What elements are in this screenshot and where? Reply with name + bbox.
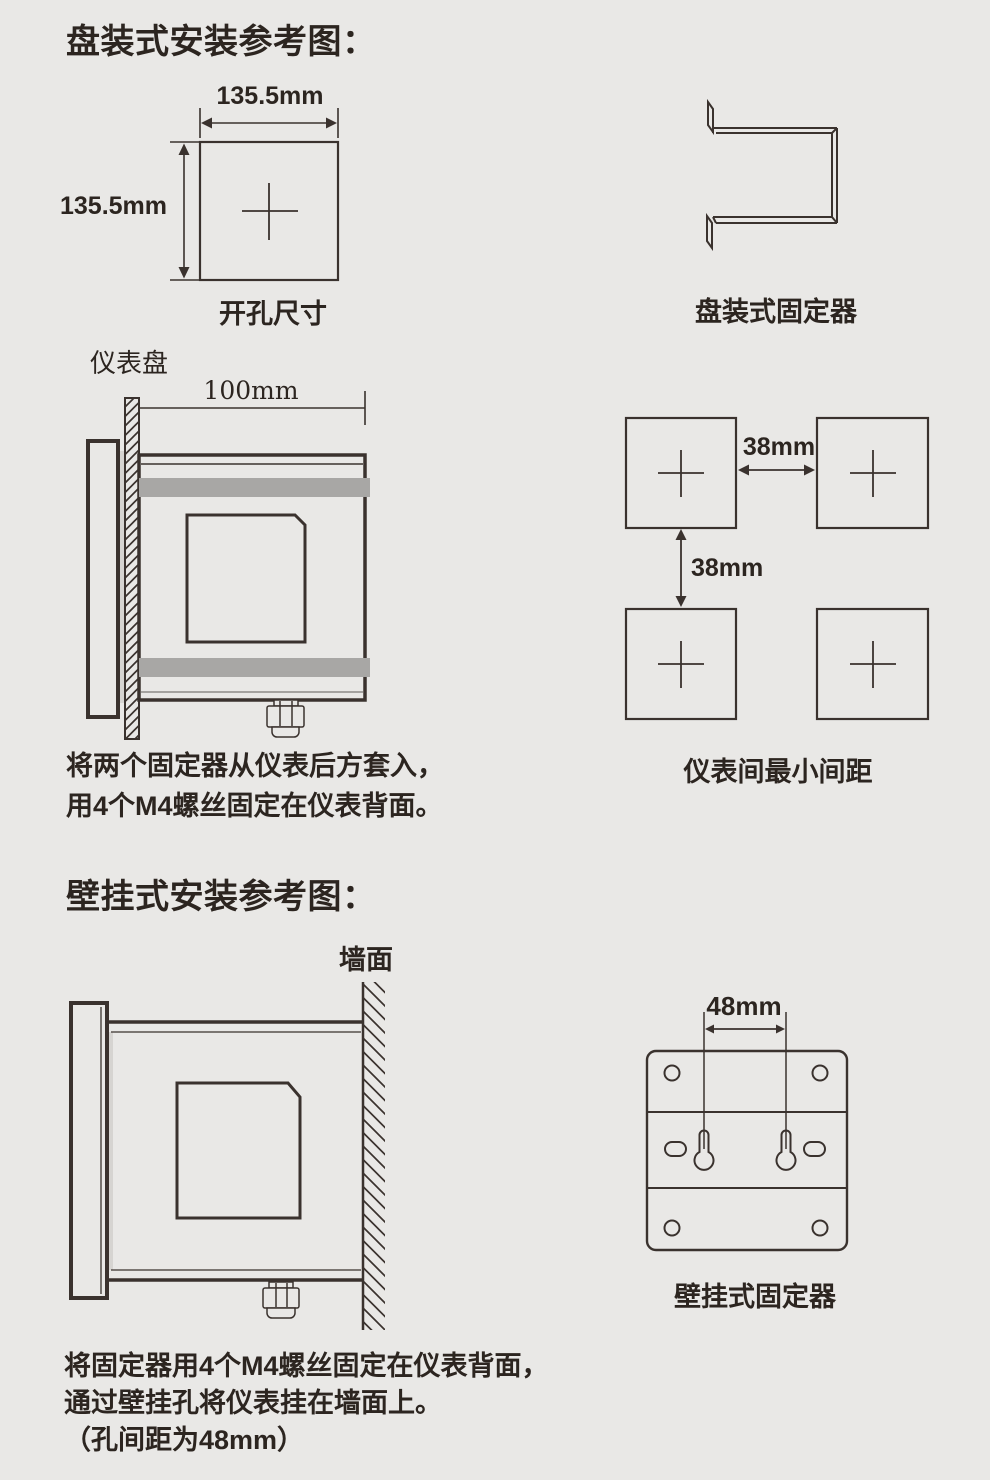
spacing-diagram — [626, 418, 928, 719]
wall-side-view-diagram — [71, 982, 385, 1330]
plate-hole-spacing-dimension: 48mm — [706, 991, 781, 1022]
wall-mount-instructions: 将固定器用4个M4螺丝固定在仪表背面， 通过壁挂孔将仪表挂在墙面上。 （孔间距为… — [64, 1348, 549, 1459]
instruction-line: 将固定器用4个M4螺丝固定在仪表背面， — [64, 1348, 549, 1385]
panel-side-view-diagram — [88, 391, 370, 739]
cutout-diagram — [170, 108, 338, 280]
front-bezel — [88, 441, 118, 717]
fixer-band-bottom — [139, 658, 370, 677]
wall-hatch — [364, 982, 385, 1330]
panel-bracket-caption: 盘装式固定器 — [695, 290, 857, 329]
cutout-caption: 开孔尺寸 — [219, 292, 327, 331]
panel-mount-instructions: 将两个固定器从仪表后方套入， 用4个M4螺丝固定在仪表背面。 — [66, 746, 444, 826]
terminal-window — [187, 515, 305, 642]
cutout-width-dimension: 135.5mm — [216, 82, 323, 111]
instrument-panel-label: 仪表盘 — [90, 343, 168, 380]
panel-bracket-diagram — [707, 102, 837, 248]
cable-gland — [263, 1282, 299, 1318]
spacing-vertical-dimension: 38mm — [691, 554, 763, 583]
instruction-line: 通过壁挂孔将仪表挂在墙面上。 — [64, 1385, 549, 1422]
spacing-caption: 仪表间最小间距 — [684, 750, 873, 789]
instruction-line: 用4个M4螺丝固定在仪表背面。 — [66, 786, 444, 826]
cable-gland — [267, 700, 304, 737]
center-cross — [242, 183, 298, 240]
wall-plate-caption: 壁挂式固定器 — [674, 1275, 836, 1314]
panel-section-title: 盘装式安装参考图： — [66, 14, 377, 63]
panel-wall-hatch — [125, 398, 139, 739]
wall-section-title: 壁挂式安装参考图： — [66, 869, 377, 918]
manual-page: 盘装式安装参考图： 135.5mm 135.5mm 开孔尺寸 盘装式固定器 仪表… — [0, 0, 990, 1480]
diagram-canvas — [0, 0, 990, 1480]
wall-plate-diagram — [647, 1012, 847, 1250]
spacing-horizontal-dimension: 38mm — [743, 433, 815, 462]
terminal-window — [177, 1083, 300, 1218]
instruction-line: 将两个固定器从仪表后方套入， — [66, 746, 444, 786]
instruction-line: （孔间距为48mm） — [64, 1422, 549, 1459]
cutout-height-dimension: 135.5mm — [60, 192, 167, 221]
wall-surface-label: 墙面 — [339, 938, 393, 977]
instrument-body — [107, 1022, 363, 1280]
depth-dimension: 100mm — [203, 376, 298, 405]
fixer-band-top — [139, 478, 370, 497]
